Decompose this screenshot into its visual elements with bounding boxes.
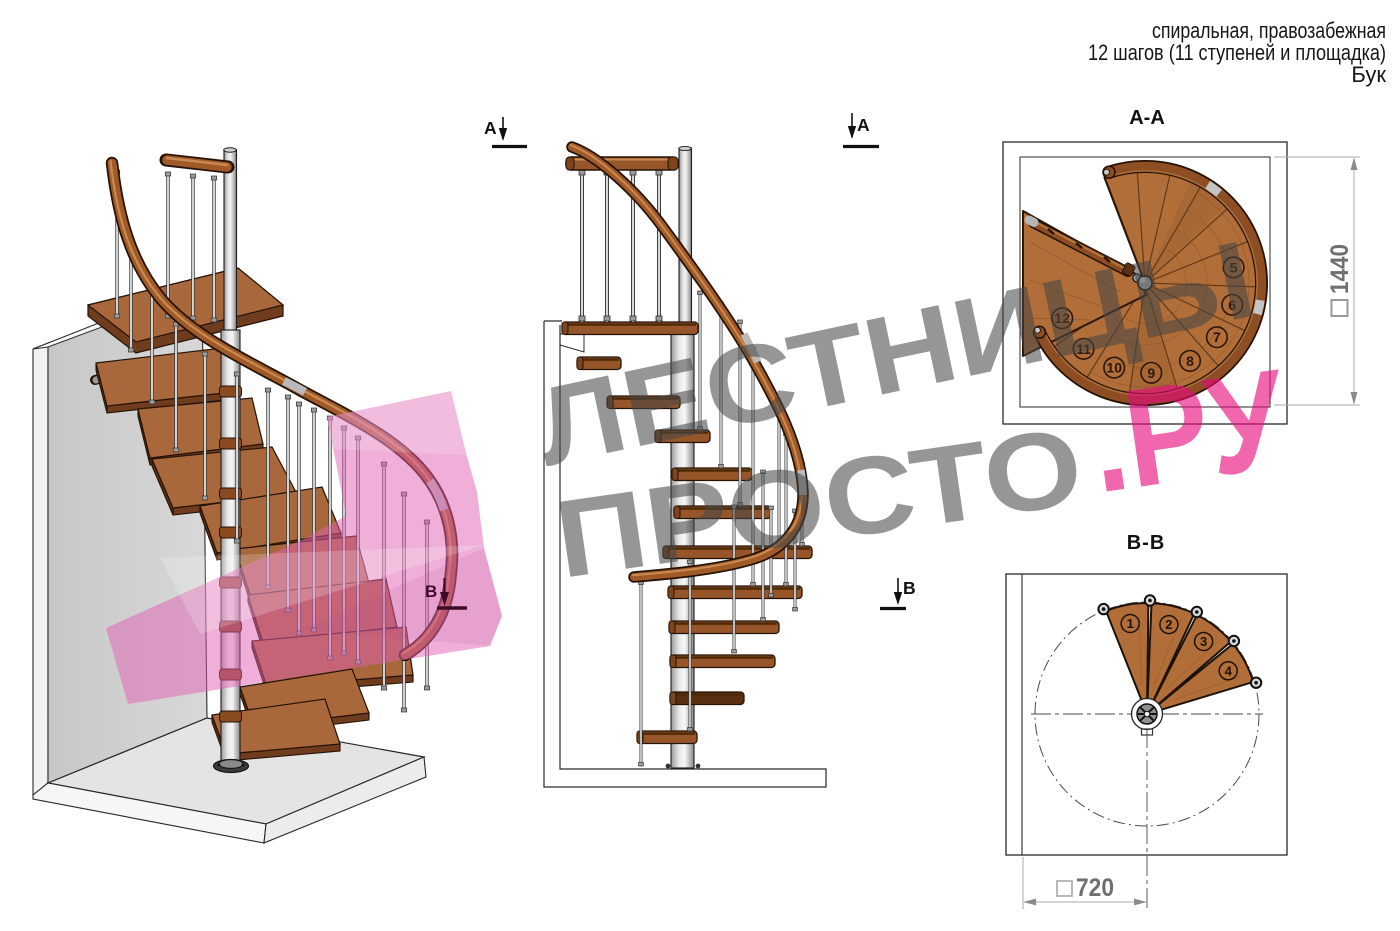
svg-text:А-А: А-А [1129, 107, 1165, 129]
svg-text:3: 3 [1200, 634, 1207, 649]
svg-text:1440: 1440 [1326, 244, 1354, 294]
svg-text:Бук: Бук [1351, 62, 1386, 87]
svg-text:В-В: В-В [1127, 532, 1166, 554]
svg-text:A: A [484, 118, 497, 138]
svg-text:.РУ: .РУ [1080, 339, 1297, 522]
svg-text:1: 1 [1127, 616, 1134, 631]
svg-text:2: 2 [1165, 617, 1172, 632]
svg-text:12 шагов (11 ступеней и площад: 12 шагов (11 ступеней и площадка) [1088, 40, 1386, 65]
svg-text:4: 4 [1225, 663, 1233, 678]
svg-text:720: 720 [1076, 874, 1114, 902]
svg-text:A: A [857, 115, 870, 135]
svg-text:B: B [425, 582, 437, 601]
svg-text:B: B [903, 578, 916, 598]
